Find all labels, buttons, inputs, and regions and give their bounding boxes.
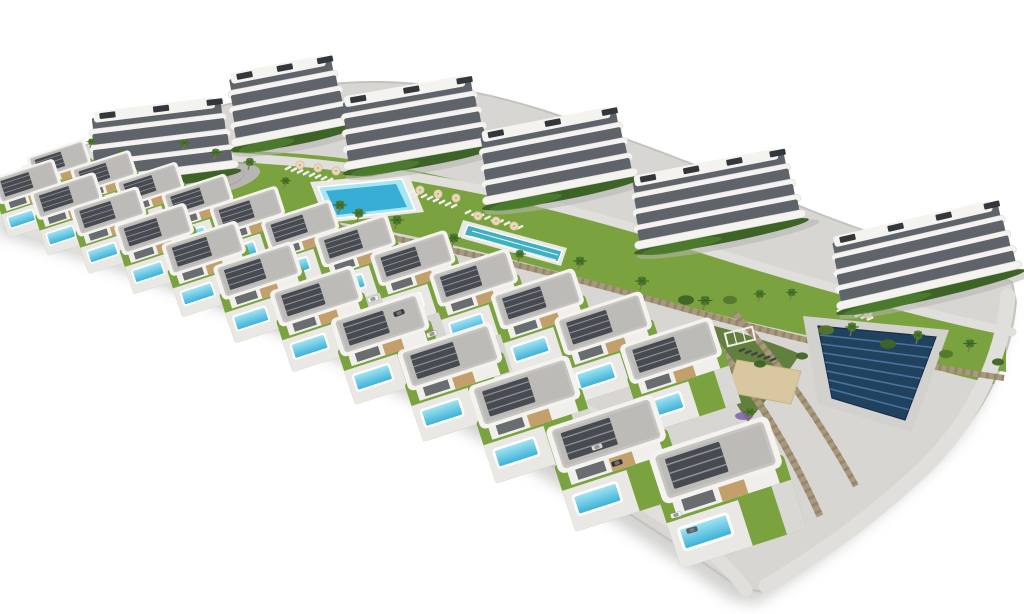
parasol bbox=[434, 190, 442, 198]
parasol bbox=[296, 161, 304, 169]
parasol-pole bbox=[495, 220, 497, 222]
bush bbox=[796, 352, 808, 359]
bush bbox=[939, 350, 953, 358]
development-aerial-render bbox=[0, 0, 1024, 614]
parasol bbox=[332, 167, 340, 175]
parasol-pole bbox=[317, 167, 319, 169]
bush bbox=[754, 360, 766, 367]
parasol-pole bbox=[335, 170, 337, 172]
bush bbox=[818, 325, 834, 335]
parasol bbox=[510, 222, 518, 230]
parasol bbox=[492, 217, 500, 225]
parasol-pole bbox=[477, 215, 479, 217]
bush bbox=[992, 358, 1004, 365]
parasol bbox=[452, 194, 460, 202]
parasol-pole bbox=[455, 197, 457, 199]
parasol bbox=[314, 164, 322, 172]
parasol bbox=[474, 212, 482, 220]
bush bbox=[723, 296, 737, 304]
parasol-pole bbox=[419, 189, 421, 191]
parasol-pole bbox=[299, 164, 301, 166]
parasol-pole bbox=[437, 193, 439, 195]
render-canvas bbox=[0, 0, 1024, 614]
bush bbox=[678, 295, 694, 305]
parasol bbox=[416, 186, 424, 194]
parasol-pole bbox=[513, 225, 515, 227]
bush bbox=[880, 339, 896, 349]
